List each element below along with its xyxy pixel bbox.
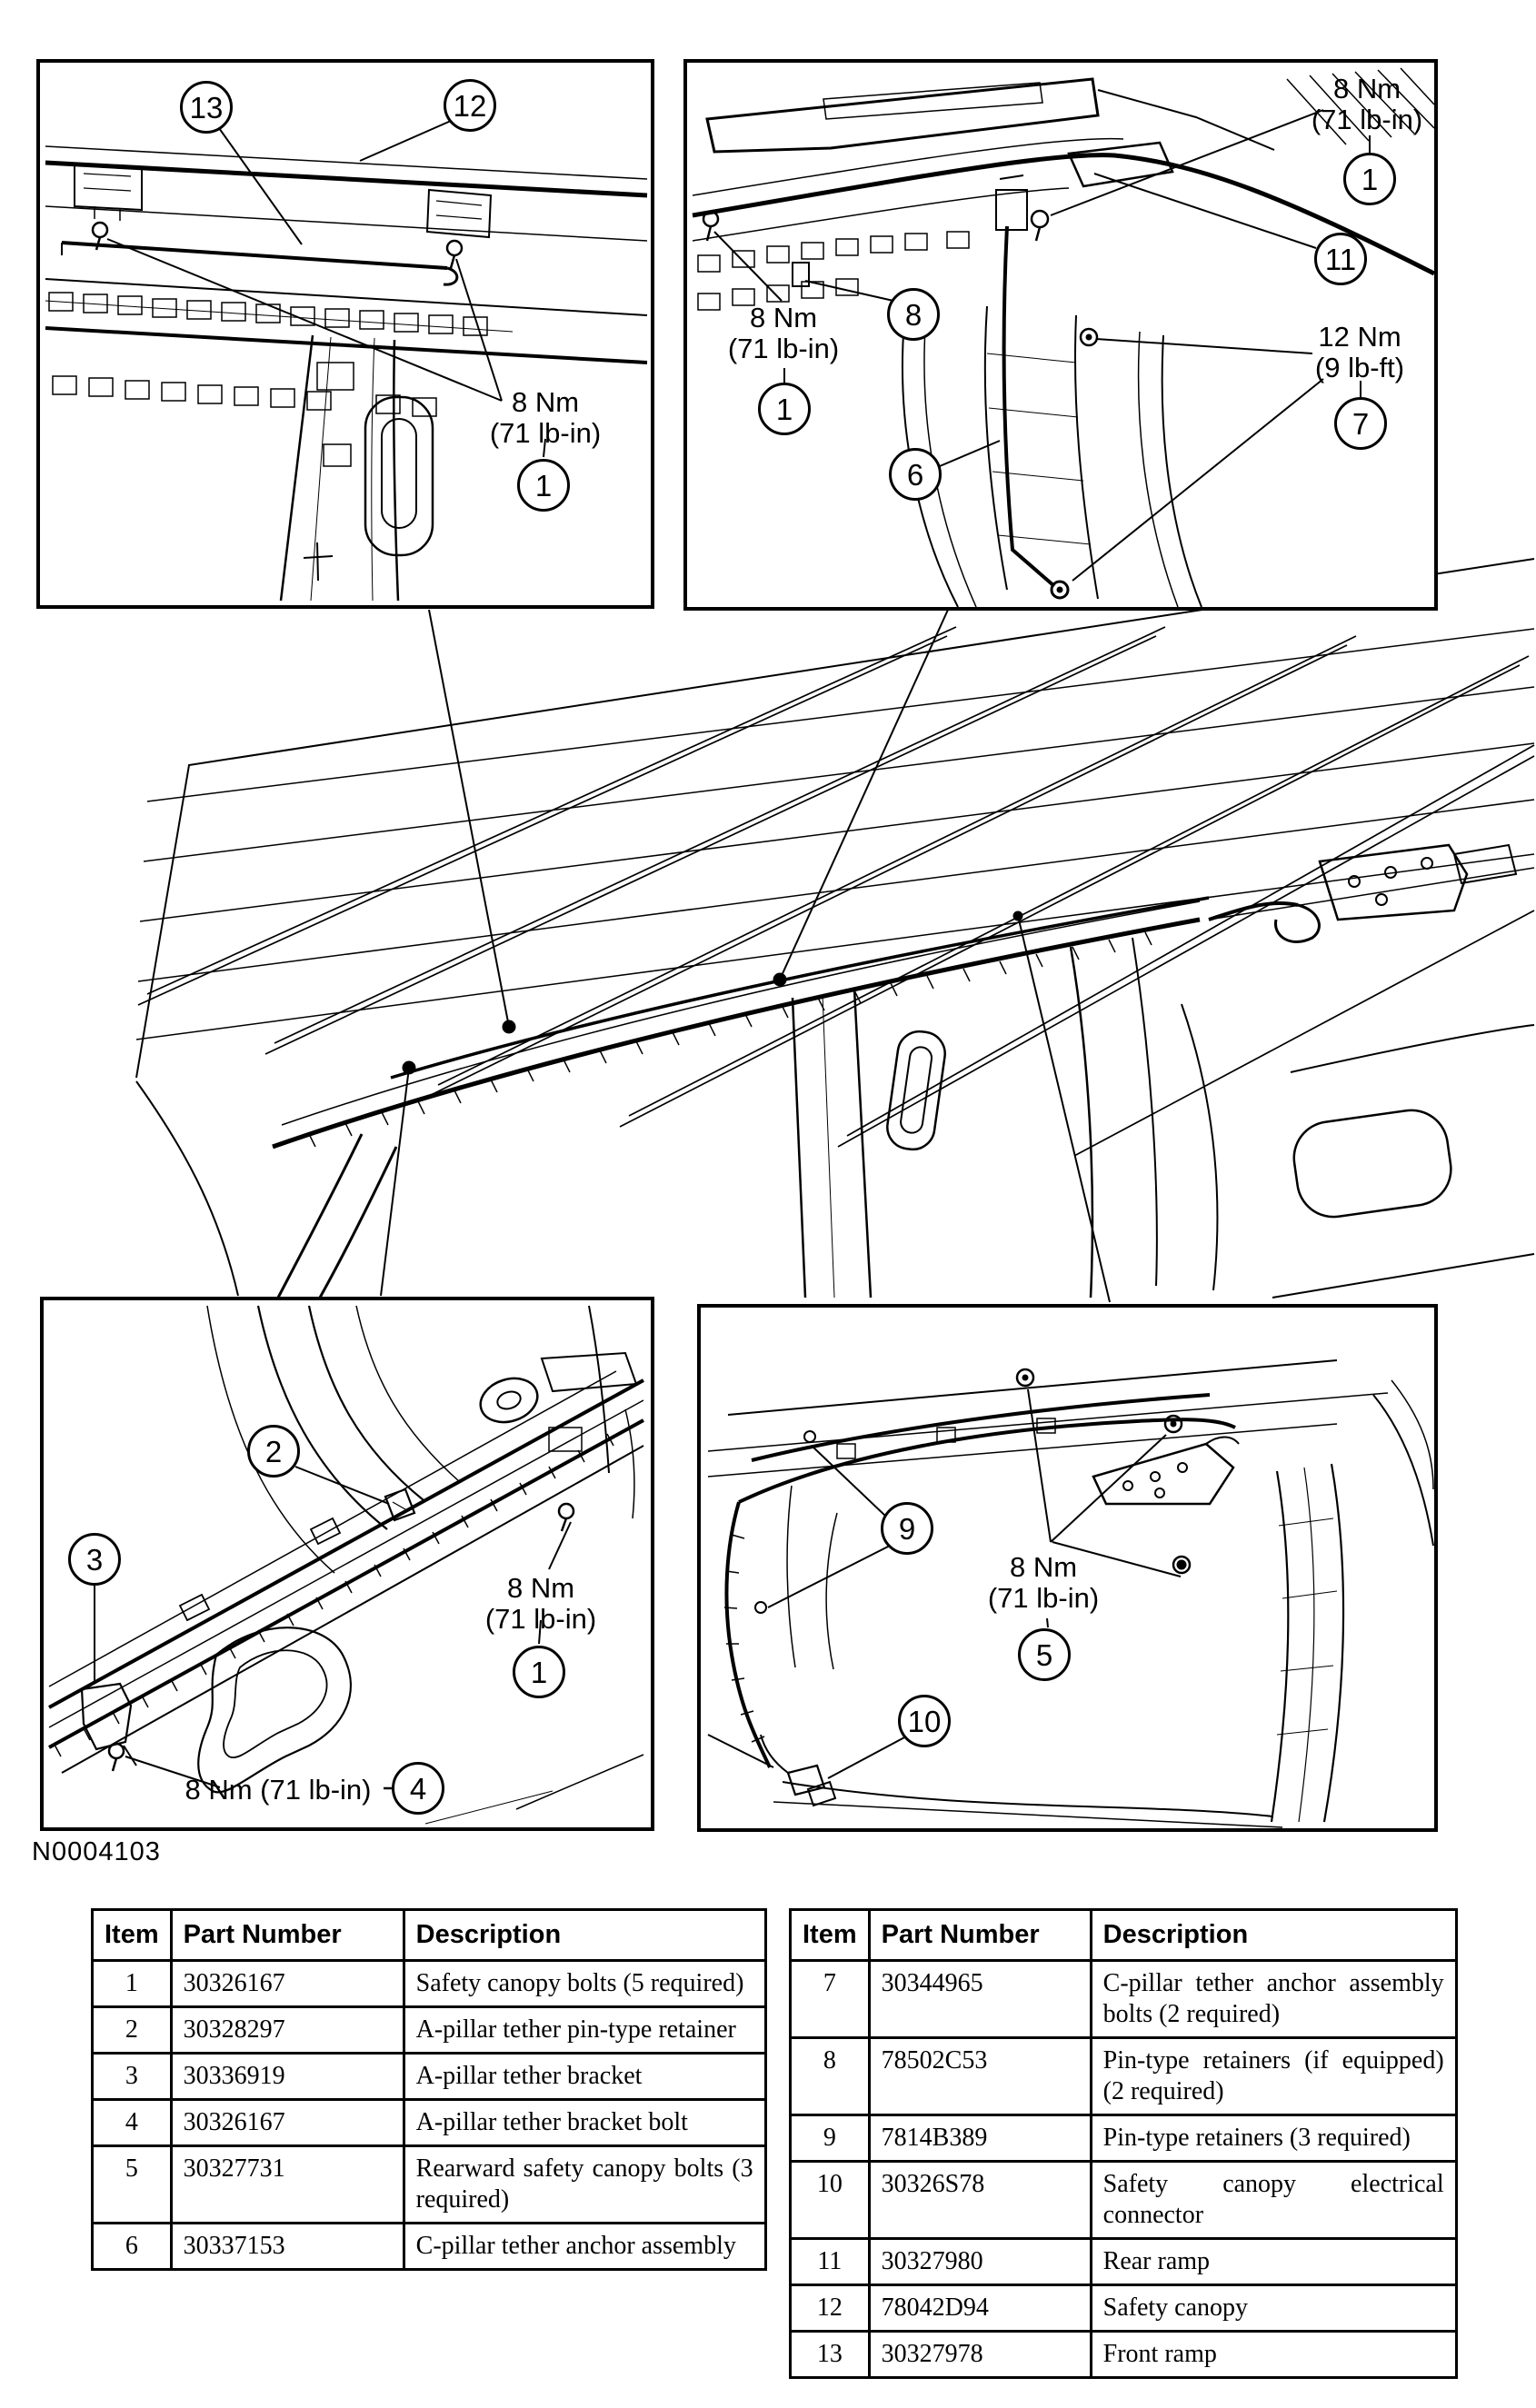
- torque-label-8nm-inline: 8 Nm (71 lb-in): [185, 1775, 372, 1806]
- a-pillar-detail-art: [44, 1300, 651, 1827]
- description-cell: A-pillar tether bracket: [404, 2054, 765, 2100]
- callout-8: 8: [887, 288, 940, 341]
- part-number-cell: 30326167: [171, 2100, 404, 2146]
- part-number-cell: 30327980: [869, 2239, 1091, 2285]
- table-row: 5 30327731 Rearward safety canopy bolts …: [93, 2146, 766, 2224]
- part-number-cell: 30327978: [869, 2332, 1091, 2378]
- description-cell: Pin-type retainers (3 required): [1091, 2115, 1456, 2162]
- detail-panel-rear-canopy: 9 8 Nm (71 lb-in) 5 10: [697, 1304, 1438, 1832]
- detail-panel-front-ramp: 13 12 8 Nm (71 lb-in) 1: [36, 59, 654, 609]
- description-cell: Safety canopy bolts (5 required): [404, 1961, 765, 2007]
- front-ramp-detail-art: [40, 63, 651, 605]
- callout-number: 1: [776, 394, 793, 424]
- description-cell: A-pillar tether bracket bolt: [404, 2100, 765, 2146]
- item-cell: 6: [93, 2224, 172, 2270]
- part-number-cell: 78042D94: [869, 2285, 1091, 2332]
- callout-3: 3: [68, 1533, 121, 1586]
- column-header-item: Item: [93, 1910, 172, 1961]
- callout-1: 1: [517, 459, 570, 512]
- callout-number: 8: [905, 300, 922, 330]
- detail-panel-c-pillar-tether: 8 Nm (71 lb-in) 1 11 8 Nm (71 lb-in) 1 8…: [683, 59, 1438, 611]
- callout-6: 6: [889, 448, 942, 501]
- callout-number: 2: [265, 1437, 282, 1467]
- item-cell: 5: [93, 2146, 172, 2224]
- torque-label-8nm: 8 Nm (71 lb-in): [988, 1552, 1099, 1614]
- torque-label-8nm: 8 Nm (71 lb-in): [728, 303, 839, 364]
- part-number-cell: 30327731: [171, 2146, 404, 2224]
- callout-number: 1: [535, 471, 552, 501]
- item-cell: 1: [93, 1961, 172, 2007]
- callout-4: 4: [392, 1762, 444, 1815]
- item-cell: 13: [791, 2332, 870, 2378]
- part-number-cell: 30326S78: [869, 2162, 1091, 2239]
- torque-line2: (71 lb-in): [988, 1583, 1099, 1614]
- callout-number: 9: [899, 1514, 915, 1544]
- torque-line2: (71 lb-in): [1312, 104, 1422, 135]
- item-cell: 2: [93, 2007, 172, 2054]
- callout-2: 2: [247, 1425, 300, 1478]
- description-cell: Safety canopy: [1091, 2285, 1456, 2332]
- callout-13: 13: [180, 81, 233, 134]
- column-header-part-number: Part Number: [869, 1910, 1091, 1961]
- callout-number: 11: [1325, 244, 1356, 274]
- torque-line2: (71 lb-in): [490, 418, 601, 449]
- description-cell: A-pillar tether pin-type retainer: [404, 2007, 765, 2054]
- parts-table-items-7-13: Item Part Number Description 7 30344965 …: [789, 1908, 1458, 2379]
- table-row: 4 30326167 A-pillar tether bracket bolt: [93, 2100, 766, 2146]
- torque-line1: 8 Nm: [728, 303, 839, 333]
- part-number-cell: 7814B389: [869, 2115, 1091, 2162]
- callout-11: 11: [1314, 233, 1367, 285]
- column-header-item: Item: [791, 1910, 870, 1961]
- item-cell: 8: [791, 2038, 870, 2115]
- column-header-description: Description: [404, 1910, 765, 1961]
- item-cell: 3: [93, 2054, 172, 2100]
- callout-7: 7: [1334, 397, 1387, 450]
- column-header-description: Description: [1091, 1910, 1456, 1961]
- torque-line2: (71 lb-in): [728, 333, 839, 364]
- callout-1: 1: [758, 383, 811, 435]
- torque-line1: 12 Nm: [1315, 322, 1404, 353]
- description-cell: C-pillar tether anchor assembly bolts (2…: [1091, 1961, 1456, 2038]
- description-cell: Pin-type retainers (if equipped) (2 requ…: [1091, 2038, 1456, 2115]
- torque-line1: 8 Nm: [1312, 74, 1422, 104]
- torque-line1: 8 Nm: [485, 1573, 596, 1604]
- torque-label-8nm: 8 Nm (71 lb-in): [485, 1573, 596, 1635]
- callout-number: 13: [190, 93, 224, 123]
- callout-10: 10: [898, 1695, 951, 1747]
- table-row: 7 30344965 C-pillar tether anchor assemb…: [791, 1961, 1457, 2038]
- table-row: 13 30327978 Front ramp: [791, 2332, 1457, 2378]
- part-number-cell: 30336919: [171, 2054, 404, 2100]
- item-cell: 9: [791, 2115, 870, 2162]
- torque-line2: (71 lb-in): [485, 1604, 596, 1635]
- callout-9: 9: [881, 1502, 933, 1555]
- description-cell: C-pillar tether anchor assembly: [404, 2224, 765, 2270]
- torque-label-12nm: 12 Nm (9 lb-ft): [1315, 322, 1404, 383]
- callout-number: 7: [1352, 409, 1369, 439]
- item-cell: 11: [791, 2239, 870, 2285]
- torque-line1: 8 Nm: [988, 1552, 1099, 1583]
- description-cell: Front ramp: [1091, 2332, 1456, 2378]
- service-manual-page: 13 12 8 Nm (71 lb-in) 1: [0, 0, 1536, 2408]
- part-number-cell: 30326167: [171, 1961, 404, 2007]
- table-row: 2 30328297 A-pillar tether pin-type reta…: [93, 2007, 766, 2054]
- callout-number: 12: [454, 91, 487, 121]
- part-number-cell: 78502C53: [869, 2038, 1091, 2115]
- detail-panel-a-pillar-tether: 2 3 8 Nm (71 lb-in) 1 8 Nm (71 lb-in) 4: [40, 1297, 654, 1831]
- table-row: 9 7814B389 Pin-type retainers (3 require…: [791, 2115, 1457, 2162]
- item-cell: 7: [791, 1961, 870, 2038]
- item-cell: 10: [791, 2162, 870, 2239]
- table-header-row: Item Part Number Description: [93, 1910, 766, 1961]
- item-cell: 12: [791, 2285, 870, 2332]
- table-row: 11 30327980 Rear ramp: [791, 2239, 1457, 2285]
- callout-12: 12: [444, 79, 496, 132]
- callout-number: 5: [1036, 1640, 1052, 1670]
- part-number-cell: 30328297: [171, 2007, 404, 2054]
- figure-id-label: N0004103: [32, 1837, 161, 1867]
- callout-5: 5: [1018, 1628, 1071, 1681]
- table-header-row: Item Part Number Description: [791, 1910, 1457, 1961]
- torque-label-8nm: 8 Nm (71 lb-in): [1312, 74, 1422, 135]
- callout-number: 1: [531, 1657, 547, 1687]
- callout-number: 3: [86, 1545, 103, 1575]
- callout-number: 4: [410, 1774, 426, 1804]
- part-number-cell: 30344965: [869, 1961, 1091, 2038]
- item-cell: 4: [93, 2100, 172, 2146]
- torque-line1: 8 Nm (71 lb-in): [185, 1775, 372, 1806]
- table-row: 6 30337153 C-pillar tether anchor assemb…: [93, 2224, 766, 2270]
- description-cell: Rearward safety canopy bolts (3 required…: [404, 2146, 765, 2224]
- torque-line1: 8 Nm: [490, 387, 601, 418]
- table-row: 3 30336919 A-pillar tether bracket: [93, 2054, 766, 2100]
- callout-number: 10: [908, 1706, 942, 1736]
- description-cell: Rear ramp: [1091, 2239, 1456, 2285]
- callout-1: 1: [1343, 153, 1396, 205]
- torque-line2: (9 lb-ft): [1315, 353, 1404, 383]
- torque-label-8nm: 8 Nm (71 lb-in): [490, 387, 601, 449]
- table-row: 8 78502C53 Pin-type retainers (if equipp…: [791, 2038, 1457, 2115]
- callout-1: 1: [513, 1646, 565, 1698]
- callout-number: 1: [1361, 164, 1378, 194]
- callout-number: 6: [907, 460, 923, 490]
- table-row: 10 30326S78 Safety canopy electrical con…: [791, 2162, 1457, 2239]
- description-cell: Safety canopy electrical connector: [1091, 2162, 1456, 2239]
- parts-table-items-1-6: Item Part Number Description 1 30326167 …: [91, 1908, 767, 2271]
- table-row: 12 78042D94 Safety canopy: [791, 2285, 1457, 2332]
- table-row: 1 30326167 Safety canopy bolts (5 requir…: [93, 1961, 766, 2007]
- column-header-part-number: Part Number: [171, 1910, 404, 1961]
- part-number-cell: 30337153: [171, 2224, 404, 2270]
